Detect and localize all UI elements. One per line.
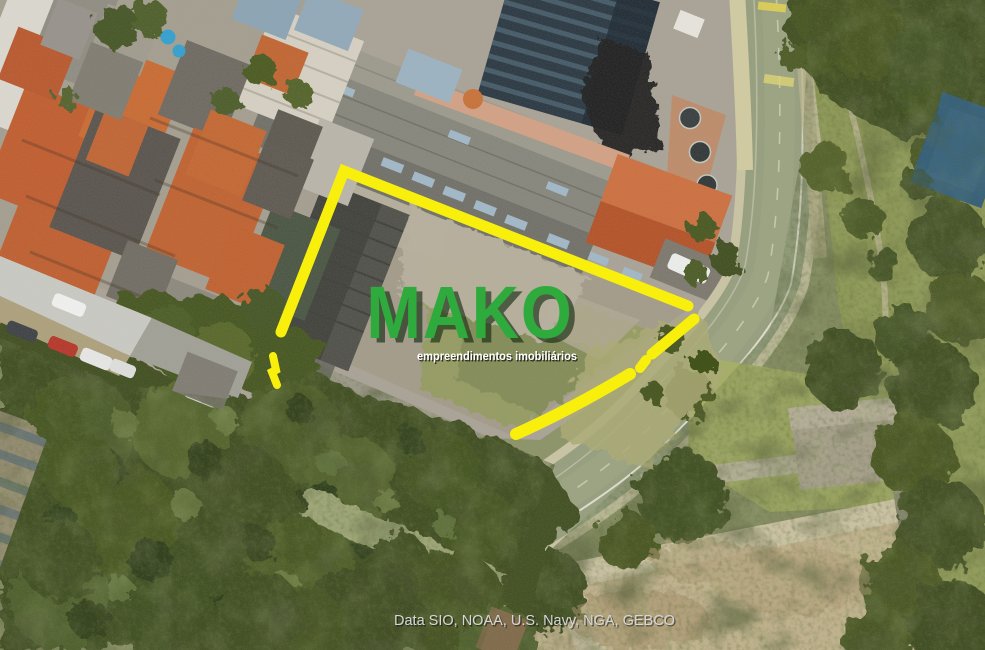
svg-text:MAKO: MAKO	[366, 271, 573, 354]
svg-text:empreendimentos imobiliários: empreendimentos imobiliários	[417, 351, 577, 363]
svg-text:Data SIO, NOAA, U.S. Navy, NGA: Data SIO, NOAA, U.S. Navy, NGA, GEBCO	[394, 613, 675, 629]
